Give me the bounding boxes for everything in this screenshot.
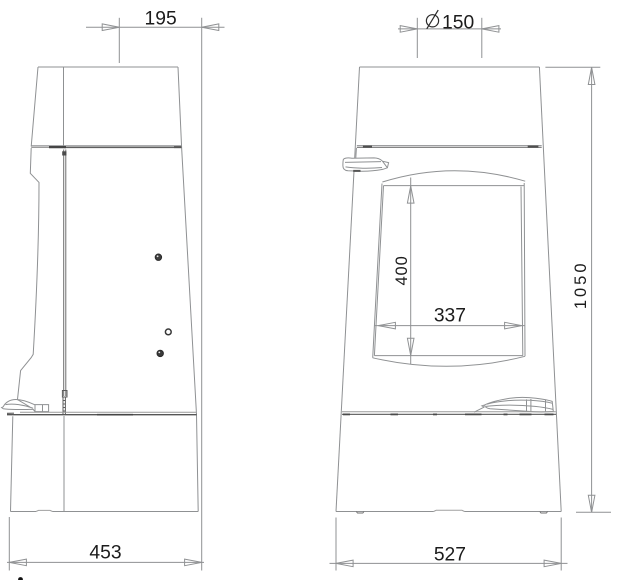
- svg-text:400: 400: [393, 255, 411, 285]
- svg-text:337: 337: [434, 306, 466, 327]
- svg-text:150: 150: [442, 13, 474, 34]
- svg-text:1050: 1050: [572, 260, 590, 309]
- svg-text:453: 453: [89, 543, 121, 564]
- svg-text:527: 527: [434, 545, 466, 566]
- svg-text:195: 195: [145, 8, 177, 29]
